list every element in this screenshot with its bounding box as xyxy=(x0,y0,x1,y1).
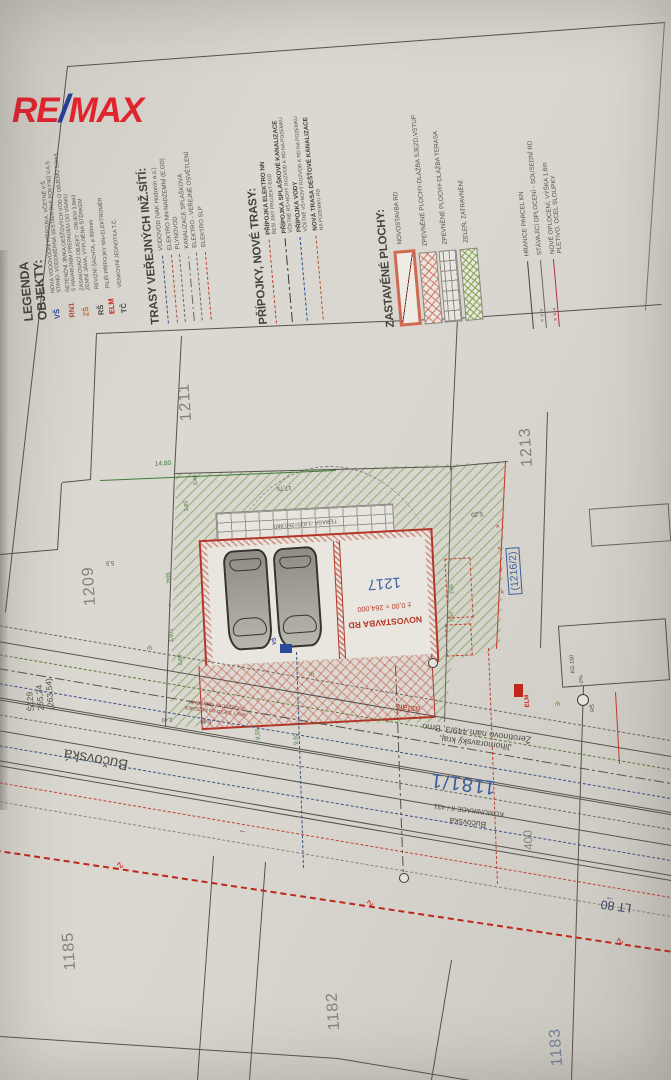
grass-symbol: Ψ xyxy=(555,698,562,707)
dimension: 9,50 xyxy=(293,733,301,745)
dimension: 14,80 xyxy=(155,460,172,468)
dimension: 1,50 xyxy=(450,612,456,622)
line-sample-pripojka-nn xyxy=(269,239,279,323)
line-sample-stavajici-oploceni xyxy=(540,260,549,328)
parcel-number-1181-1: 1181/1 xyxy=(429,768,497,799)
road-width-label: 400 xyxy=(521,830,536,851)
shaft-label-rs: RŠ xyxy=(590,704,597,712)
line-sample-pripojka-vody xyxy=(299,237,309,321)
manhole-circle xyxy=(428,658,438,668)
site-plan-photo: TERASA -3,820=260,980 1217 ± 0,00 = 264,… xyxy=(0,0,671,1080)
grass-symbol: Ψ xyxy=(309,668,316,677)
line-sample-hranice xyxy=(527,261,536,329)
plan-line-s1 xyxy=(338,1058,470,1080)
plan-line-s1 xyxy=(540,412,548,648)
dimension: 5,20 xyxy=(471,509,483,516)
plan-line-rs xyxy=(615,692,620,764)
line-sample-pripojka-kanalizace xyxy=(284,238,293,322)
parcel-number-1213: 1213 xyxy=(516,427,537,468)
slope-label: -2% xyxy=(579,675,586,685)
remax-slash-icon: / xyxy=(59,88,69,131)
parcel-number-1217: 1217 xyxy=(345,571,424,595)
dimension: 2,65 xyxy=(450,584,456,594)
elm-pillar-marker xyxy=(514,684,523,697)
neighbour-structure xyxy=(589,503,671,546)
flow-arrow-icon: ← xyxy=(605,891,616,903)
street-name-bucovska-small: Bučovská xyxy=(449,815,487,829)
boundary-zigzag-icon: ∿ xyxy=(365,898,375,911)
car-icon xyxy=(272,546,323,649)
parcel-number-1211: 1211 xyxy=(175,382,196,422)
boundary-zigzag-icon: ∿ xyxy=(115,860,125,873)
garage-wall xyxy=(333,541,346,659)
dimension: 17,75 xyxy=(276,483,291,491)
dimension: 3,40 xyxy=(192,474,199,485)
plan-line-s1 xyxy=(90,333,97,480)
dimension: 5,5 xyxy=(106,558,115,565)
parcel-number-1216-2: (1216/2) xyxy=(505,547,522,595)
plan-line-s1 xyxy=(450,318,458,470)
plan-line-dgf xyxy=(0,798,671,922)
plan-line-s1 xyxy=(0,1036,338,1059)
survey-point-labels: Š129 265,24 (263,54) xyxy=(20,640,56,712)
terrace-label: TERASA -3,820=260,980 xyxy=(273,517,336,528)
grass-symbol: Ψ xyxy=(147,642,154,651)
line-sample-nove-oploceni xyxy=(553,259,562,327)
parcel-number-1209: 1209 xyxy=(79,566,100,607)
water-shaft-marker xyxy=(280,644,292,653)
line-sample-slp xyxy=(204,252,213,320)
swatch-zelen xyxy=(459,248,483,321)
legend-pripojky: PŘÍPOJKY, NOVÉ TRASY: PŘÍPOJKA ELEKTRO N… xyxy=(232,22,335,325)
dimension: 9,55 xyxy=(255,728,263,740)
dimension: 6,40 xyxy=(200,718,211,725)
plan-line-s1 xyxy=(431,960,452,1080)
plan-line-dg xyxy=(0,711,671,835)
remax-logo: RE/MAX xyxy=(12,88,143,132)
house-title-label: NOVOSTAVBA RD xyxy=(345,613,426,630)
neighbour-building xyxy=(558,618,670,687)
legend-plochy: ZASTAVĚNÉ PLOCHY: NOVOSTAVBA RD ZPEVNĚNÉ… xyxy=(359,17,486,328)
plan-line-s1f xyxy=(645,22,665,310)
paper-edge-shadow xyxy=(0,250,9,810)
pillar-label-elm: ELM xyxy=(524,694,532,707)
plan-line-s1 xyxy=(249,862,266,1080)
parcel-number-1183: 1183 xyxy=(546,1027,567,1067)
parcel-number-1185: 1185 xyxy=(59,931,80,971)
parcel-number-1182: 1182 xyxy=(323,991,344,1031)
street-name-bucovska: Bučovská xyxy=(62,745,129,773)
soak-object-outline xyxy=(445,623,473,656)
new-house-outline: 1217 ± 0,00 = 264,000 NOVOSTAVBA RD xyxy=(199,528,440,674)
surface-label-asfalt: asfalt xyxy=(397,700,421,714)
swatch-novostavba xyxy=(393,249,422,327)
car-icon xyxy=(222,548,273,651)
boundary-zigzag-icon: ∿ xyxy=(615,936,625,949)
manhole-circle xyxy=(399,873,409,883)
line-sample-destova-kanalizace xyxy=(315,235,325,319)
plan-line-drb xyxy=(0,848,671,957)
house-interior: 1217 ± 0,00 = 264,000 NOVOSTAVBA RD xyxy=(207,536,431,665)
dimension: 3,00 xyxy=(168,631,175,642)
plan-line-s1 xyxy=(57,483,62,550)
plan-line-s1 xyxy=(197,856,214,1080)
manhole-circle xyxy=(577,694,589,706)
legend-hranice: HRANICE PARCEL KN STÁVAJÍCÍ OPLOCENÍ - S… xyxy=(495,22,572,330)
dimension: 3,85 xyxy=(183,500,190,511)
dimension: 5,60 xyxy=(177,654,184,665)
plan-line-s1 xyxy=(62,479,91,483)
dimension: 2,40 xyxy=(161,716,172,723)
house-level-label: ± 0,00 = 264,000 xyxy=(344,599,424,614)
shaft-label-vs: VŠ xyxy=(272,637,279,645)
pipe-label-kg150: KG 150 xyxy=(569,654,577,673)
flow-arrow-icon: ← xyxy=(238,824,249,836)
plan-line-s1 xyxy=(0,727,671,851)
